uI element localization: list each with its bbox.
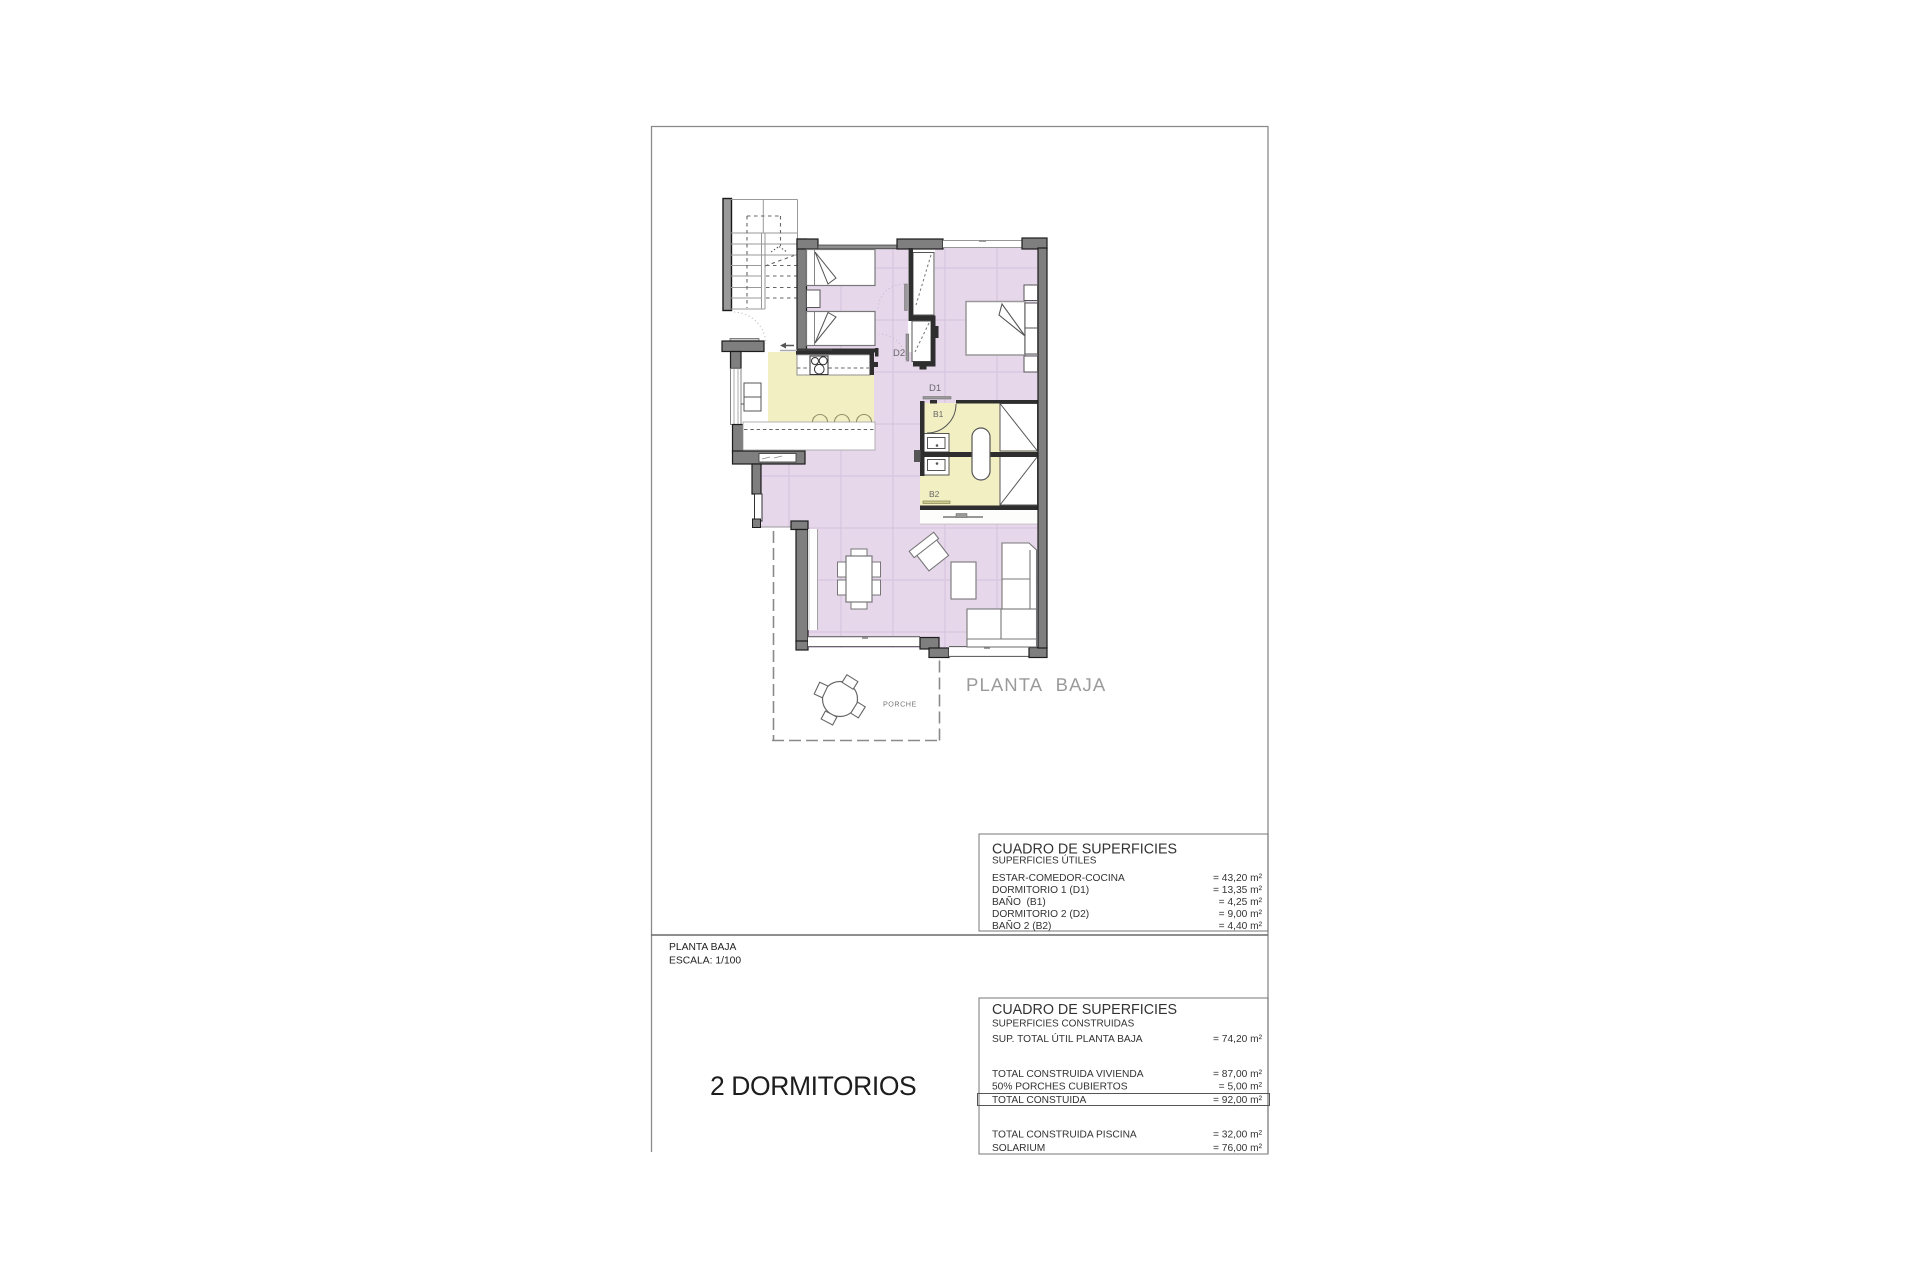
svg-text:ESTAR-COMEDOR-COCINA: ESTAR-COMEDOR-COCINA <box>992 873 1125 884</box>
svg-text:= 32,00 m²: = 32,00 m² <box>1213 1130 1263 1141</box>
svg-text:= 9,00 m²: = 9,00 m² <box>1219 909 1263 920</box>
svg-text:DORMITORIO 2 (D2): DORMITORIO 2 (D2) <box>992 909 1089 920</box>
svg-text:TOTAL CONSTUIDA: TOTAL CONSTUIDA <box>992 1095 1087 1106</box>
svg-text:SUPERFICIES ÚTILES: SUPERFICIES ÚTILES <box>992 854 1097 867</box>
svg-text:TOTAL CONSTRUIDA VIVIENDA: TOTAL CONSTRUIDA VIVIENDA <box>992 1069 1144 1080</box>
svg-text:BAÑO 2 (B2): BAÑO 2 (B2) <box>992 919 1051 932</box>
svg-text:= 87,00 m²: = 87,00 m² <box>1213 1069 1263 1080</box>
svg-text:= 74,20 m²: = 74,20 m² <box>1213 1034 1263 1045</box>
svg-text:= 43,20 m²: = 43,20 m² <box>1213 873 1263 884</box>
svg-text:SOLARIUM: SOLARIUM <box>992 1143 1045 1154</box>
svg-text:DORMITORIO 1 (D1): DORMITORIO 1 (D1) <box>992 885 1089 896</box>
svg-text:PLANTA BAJA: PLANTA BAJA <box>669 942 736 953</box>
svg-text:BAÑO (B1): BAÑO (B1) <box>992 895 1046 908</box>
svg-text:= 4,25 m²: = 4,25 m² <box>1219 897 1263 908</box>
svg-text:50% PORCHES CUBIERTOS: 50% PORCHES CUBIERTOS <box>992 1082 1128 1093</box>
svg-text:SUPERFICIES CONSTRUIDAS: SUPERFICIES CONSTRUIDAS <box>992 1019 1135 1030</box>
svg-text:TOTAL CONSTRUIDA PISCINA: TOTAL CONSTRUIDA PISCINA <box>992 1130 1137 1141</box>
svg-text:ESCALA: 1/100: ESCALA: 1/100 <box>669 956 741 967</box>
svg-text:= 13,35 m²: = 13,35 m² <box>1213 885 1263 896</box>
svg-text:D2: D2 <box>893 348 905 359</box>
svg-text:= 4,40 m²: = 4,40 m² <box>1219 921 1263 932</box>
svg-text:= 5,00 m²: = 5,00 m² <box>1219 1082 1263 1093</box>
svg-text:PLANTA BAJA: PLANTA BAJA <box>966 674 1106 695</box>
svg-text:PORCHE: PORCHE <box>883 700 917 709</box>
svg-text:= 92,00 m²: = 92,00 m² <box>1213 1095 1263 1106</box>
svg-text:= 76,00 m²: = 76,00 m² <box>1213 1143 1263 1154</box>
svg-text:CUADRO DE SUPERFICIES: CUADRO DE SUPERFICIES <box>992 1002 1177 1018</box>
svg-text:D1: D1 <box>929 383 941 394</box>
svg-text:B1: B1 <box>933 409 944 419</box>
svg-text:2 DORMITORIOS: 2 DORMITORIOS <box>710 1071 916 1101</box>
svg-text:SUP. TOTAL ÚTIL PLANTA BAJA: SUP. TOTAL ÚTIL PLANTA BAJA <box>992 1032 1143 1045</box>
svg-text:B2: B2 <box>929 489 940 499</box>
